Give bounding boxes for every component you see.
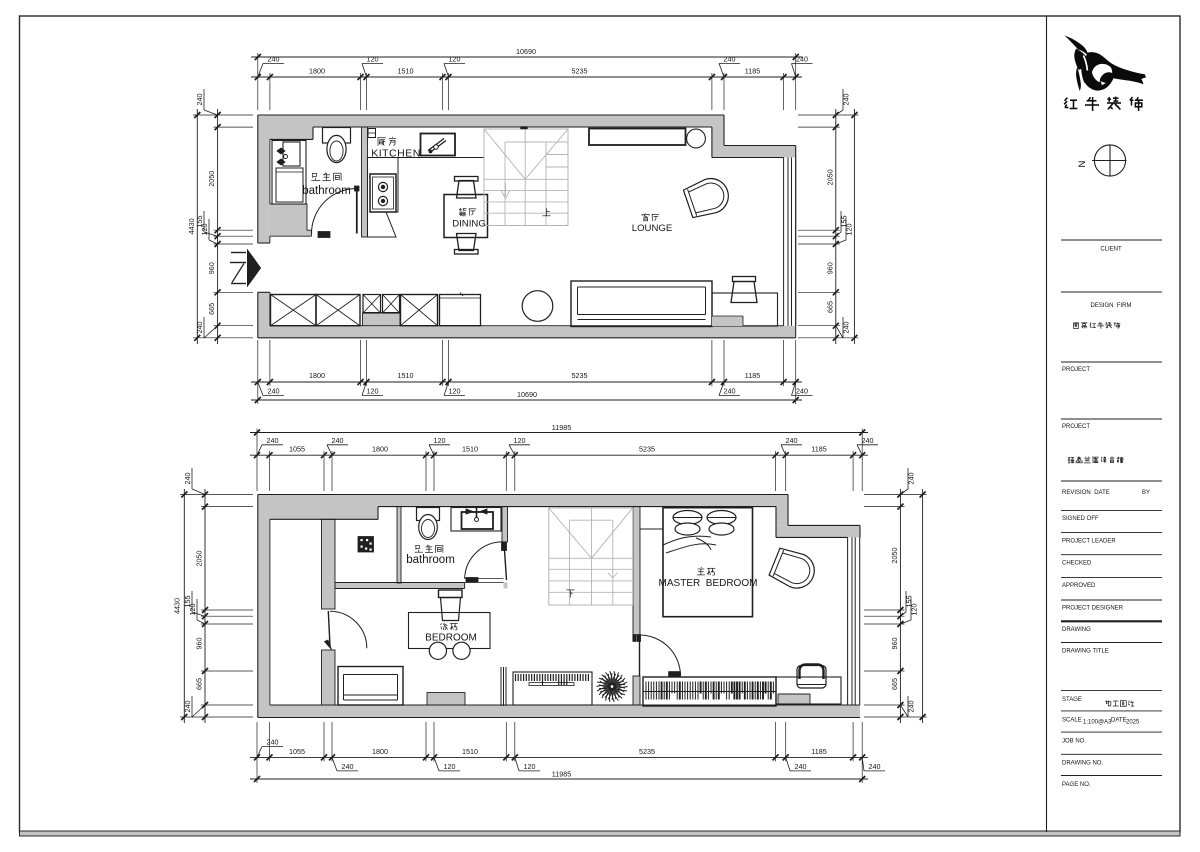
svg-text:1:100@A3: 1:100@A3	[1083, 720, 1112, 726]
svg-text:240: 240	[907, 473, 916, 485]
svg-text:120: 120	[910, 604, 919, 616]
svg-text:240: 240	[724, 55, 736, 64]
svg-text:120: 120	[200, 224, 209, 236]
svg-text:240: 240	[332, 436, 344, 445]
svg-text:960: 960	[890, 638, 899, 650]
svg-text:1510: 1510	[462, 747, 478, 756]
svg-text:PROJECT DESIGNER: PROJECT DESIGNER	[1062, 606, 1124, 612]
svg-text:1185: 1185	[745, 371, 760, 380]
svg-text:1185: 1185	[811, 747, 826, 756]
svg-text:120: 120	[434, 436, 446, 445]
svg-text:120: 120	[444, 762, 456, 771]
svg-text:1800: 1800	[372, 445, 388, 454]
svg-text:bathroom: bathroom	[302, 185, 351, 197]
svg-text:5235: 5235	[572, 67, 588, 76]
svg-text:2050: 2050	[825, 169, 834, 185]
svg-text:JOB NO.: JOB NO.	[1062, 739, 1086, 745]
svg-text:DINING: DINING	[452, 219, 486, 230]
svg-text:665: 665	[195, 678, 204, 690]
svg-text:120: 120	[524, 762, 536, 771]
svg-text:BY: BY	[1142, 490, 1150, 496]
svg-text:PAGE NO.: PAGE NO.	[1062, 782, 1091, 788]
svg-text:1510: 1510	[462, 445, 478, 454]
svg-text:120: 120	[514, 436, 526, 445]
svg-text:APPROVED: APPROVED	[1062, 583, 1096, 589]
svg-text:4430: 4430	[173, 598, 182, 614]
svg-text:10690: 10690	[517, 390, 537, 399]
svg-text:1510: 1510	[398, 67, 414, 76]
svg-text:960: 960	[195, 638, 204, 650]
svg-text:240: 240	[183, 701, 192, 713]
svg-text:DESIGN FIRM: DESIGN FIRM	[1090, 303, 1131, 309]
svg-text:240: 240	[869, 762, 881, 771]
svg-text:CHECKED: CHECKED	[1062, 561, 1092, 567]
svg-text:240: 240	[842, 94, 851, 106]
svg-text:240: 240	[842, 322, 851, 334]
svg-text:5235: 5235	[572, 371, 588, 380]
svg-text:10690: 10690	[516, 47, 536, 56]
svg-text:STAGE: STAGE	[1062, 697, 1082, 703]
svg-text:KITCHEN: KITCHEN	[371, 148, 421, 160]
svg-text:5235: 5235	[639, 445, 655, 454]
svg-text:DATE: DATE	[1094, 490, 1110, 496]
svg-text:240: 240	[786, 436, 798, 445]
svg-text:PROJECT LEADER: PROJECT LEADER	[1062, 539, 1116, 545]
svg-text:240: 240	[268, 55, 280, 64]
svg-text:1055: 1055	[289, 445, 305, 454]
svg-text:11985: 11985	[552, 769, 571, 778]
svg-text:240: 240	[195, 94, 204, 106]
svg-text:120: 120	[367, 387, 379, 396]
svg-text:1185: 1185	[811, 445, 826, 454]
svg-text:240: 240	[724, 387, 736, 396]
svg-text:DRAWING TITLE: DRAWING TITLE	[1062, 649, 1109, 655]
svg-text:11985: 11985	[552, 423, 571, 432]
svg-text:2050: 2050	[195, 551, 204, 567]
svg-text:1185: 1185	[745, 67, 760, 76]
svg-text:SIGNED OFF: SIGNED OFF	[1062, 516, 1099, 522]
svg-text:240: 240	[796, 55, 808, 64]
svg-text:240: 240	[183, 473, 192, 485]
svg-text:1055: 1055	[289, 747, 305, 756]
svg-text:BEDROOM: BEDROOM	[425, 633, 477, 644]
svg-text:DRAWING NO.: DRAWING NO.	[1062, 761, 1103, 767]
svg-text:120: 120	[367, 55, 379, 64]
svg-text:240: 240	[862, 436, 874, 445]
svg-text:240: 240	[342, 762, 354, 771]
svg-text:665: 665	[825, 301, 834, 313]
svg-text:240: 240	[795, 762, 807, 771]
svg-text:REVISION: REVISION	[1062, 490, 1091, 496]
svg-text:2050: 2050	[890, 548, 899, 564]
svg-text:SCALE: SCALE	[1062, 718, 1082, 724]
svg-text:240: 240	[267, 436, 279, 445]
svg-text:DRAWING: DRAWING	[1062, 627, 1091, 633]
svg-text:2050: 2050	[207, 171, 216, 187]
svg-text:LOUNGE: LOUNGE	[632, 223, 673, 234]
svg-text:120: 120	[449, 55, 461, 64]
svg-text:240: 240	[267, 738, 279, 747]
svg-text:DATE: DATE	[1111, 718, 1127, 724]
svg-text:1800: 1800	[309, 371, 325, 380]
svg-text:PROJECT: PROJECT	[1062, 367, 1090, 373]
svg-text:665: 665	[207, 303, 216, 315]
svg-text:2025: 2025	[1126, 720, 1140, 726]
svg-text:CLIENT: CLIENT	[1100, 247, 1122, 253]
svg-text:240: 240	[195, 322, 204, 334]
svg-text:1800: 1800	[372, 747, 388, 756]
svg-text:5235: 5235	[639, 747, 655, 756]
svg-text:N: N	[1077, 160, 1088, 167]
svg-text:PROJECT: PROJECT	[1062, 424, 1090, 430]
svg-text:960: 960	[207, 262, 216, 274]
svg-text:1800: 1800	[309, 67, 325, 76]
svg-text:240: 240	[907, 701, 916, 713]
svg-text:960: 960	[825, 262, 834, 274]
svg-text:MASTER BEDROOM: MASTER BEDROOM	[659, 578, 758, 589]
svg-text:bathroom: bathroom	[406, 554, 455, 566]
svg-text:120: 120	[449, 387, 461, 396]
svg-text:240: 240	[796, 387, 808, 396]
svg-text:1510: 1510	[398, 371, 414, 380]
svg-text:240: 240	[268, 387, 280, 396]
svg-text:120: 120	[188, 604, 197, 616]
svg-text:665: 665	[890, 678, 899, 690]
svg-text:120: 120	[845, 224, 854, 236]
